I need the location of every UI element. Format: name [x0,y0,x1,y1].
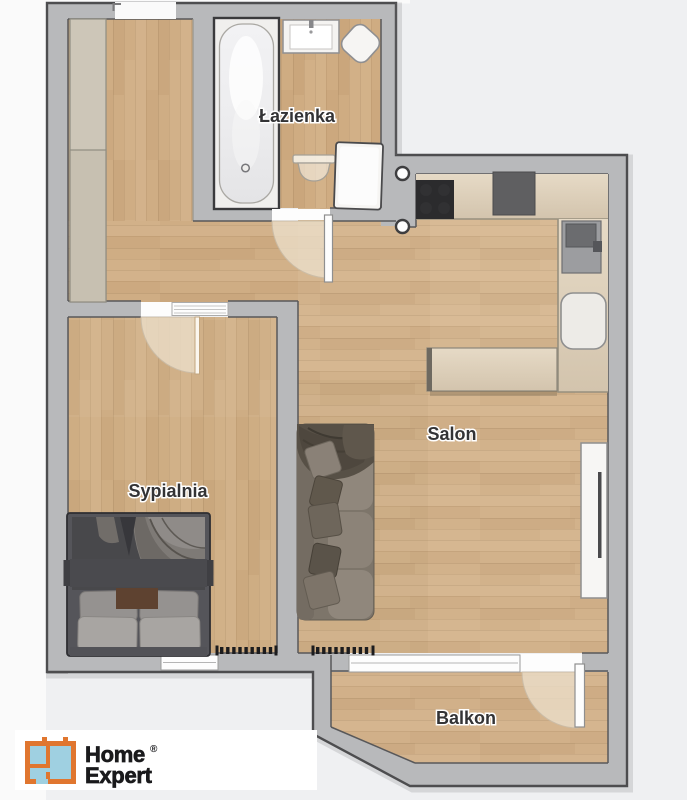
svg-text:®: ® [150,744,158,755]
svg-text:Balkon: Balkon [436,708,496,728]
svg-text:Sypialnia: Sypialnia [128,481,208,501]
svg-text:Expert: Expert [85,763,153,788]
svg-text:Salon: Salon [427,424,476,444]
svg-text:Łazienka: Łazienka [259,106,336,126]
